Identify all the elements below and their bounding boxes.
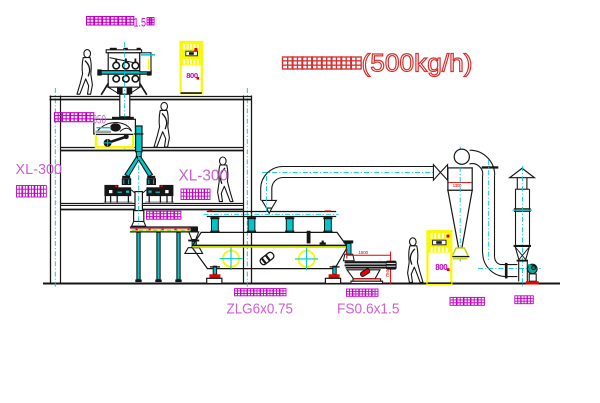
svg-text:XL-300: XL-300 [16,162,63,178]
svg-text:ZLG6x0.75: ZLG6x0.75 [227,302,294,318]
svg-text:1.5: 1.5 [134,16,147,30]
svg-text:800: 800 [435,263,448,272]
svg-text:1300: 1300 [453,183,462,188]
svg-text:1500: 1500 [359,250,369,255]
svg-text:XL-300: XL-300 [179,168,229,185]
svg-text:750: 750 [385,269,390,277]
svg-text:350: 350 [93,113,107,127]
svg-text:(500kg/h): (500kg/h) [362,50,473,78]
svg-text:FS0.6x1.5: FS0.6x1.5 [337,302,400,318]
svg-text:800: 800 [186,71,198,80]
